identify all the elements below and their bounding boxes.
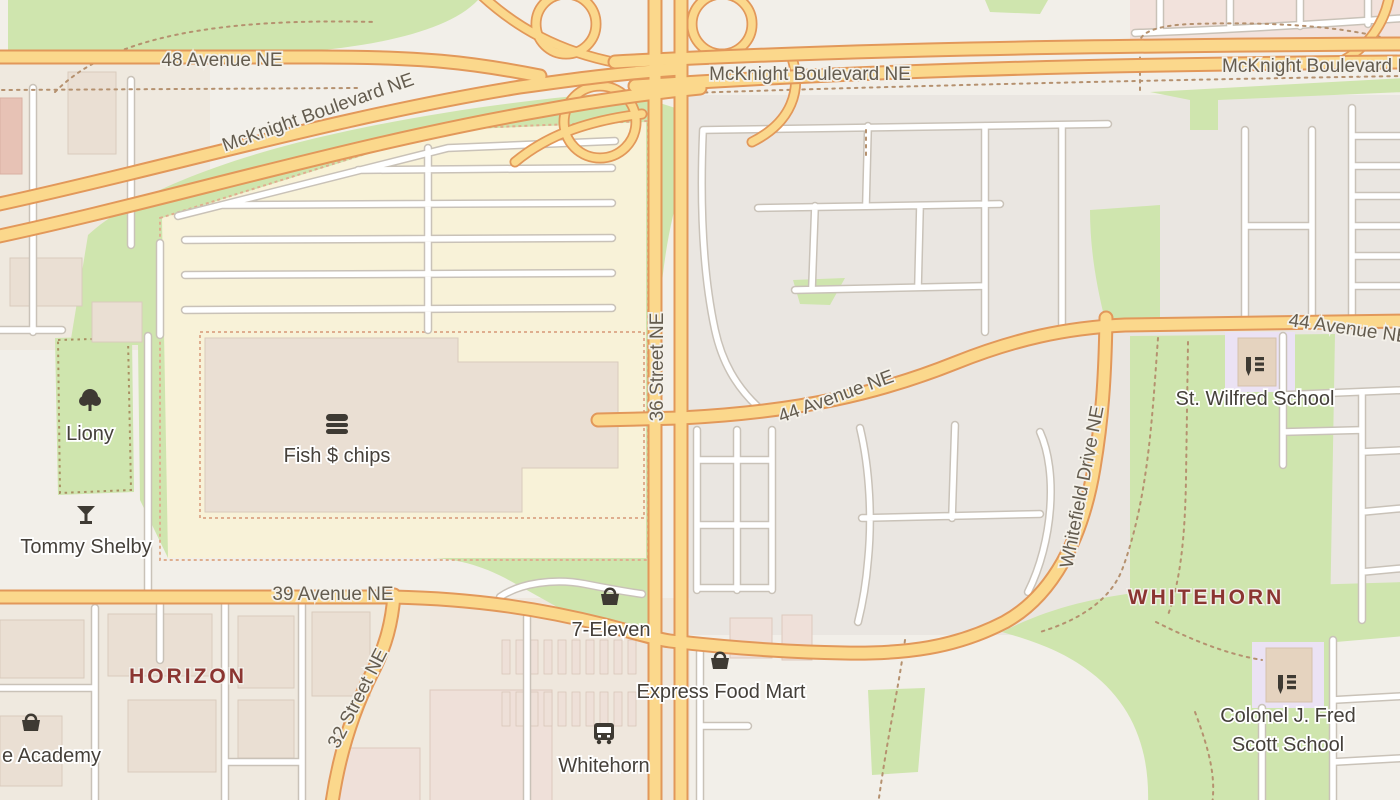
- poi-label-express-food-mart: Express Food Mart: [637, 681, 806, 703]
- poi-label-tommy-shelby: Tommy Shelby: [20, 536, 151, 558]
- poi-label-liony: Liony: [66, 423, 114, 445]
- poi-label-colonel-scott-1: Colonel J. Fred: [1220, 705, 1356, 727]
- liony-park: [55, 336, 134, 495]
- street-label-mcknight-right: McKnight Boulevard NE: [1222, 56, 1400, 77]
- poi-label-colonel-scott-2: Scott School: [1232, 734, 1344, 756]
- street-label-36-street: 36 Street NE: [647, 313, 668, 422]
- green-patch: [985, 0, 1048, 14]
- poi-label-7-eleven: 7-Eleven: [572, 619, 651, 641]
- district-label-horizon: HORIZON: [129, 665, 247, 688]
- poi-label-whitehorn-station: Whitehorn: [558, 755, 649, 777]
- street-label-48-avenue: 48 Avenue NE: [161, 50, 282, 71]
- poi-label-st-wilfred: St. Wilfred School: [1176, 388, 1335, 410]
- poi-label-academy: e Academy: [2, 745, 101, 767]
- map-canvas[interactable]: 48 Avenue NE McKnight Boulevard NE McKni…: [0, 0, 1400, 800]
- st-wilfred-building: [1238, 338, 1276, 386]
- fast-food-icon[interactable]: [326, 414, 348, 434]
- street-label-mcknight-center: McKnight Boulevard NE: [709, 64, 911, 85]
- poi-label-fish-chips: Fish $ chips: [284, 445, 391, 467]
- street-label-39-avenue: 39 Avenue NE: [272, 584, 393, 605]
- district-label-whitehorn: WHITEHORN: [1128, 586, 1285, 609]
- green-patch: [868, 688, 925, 775]
